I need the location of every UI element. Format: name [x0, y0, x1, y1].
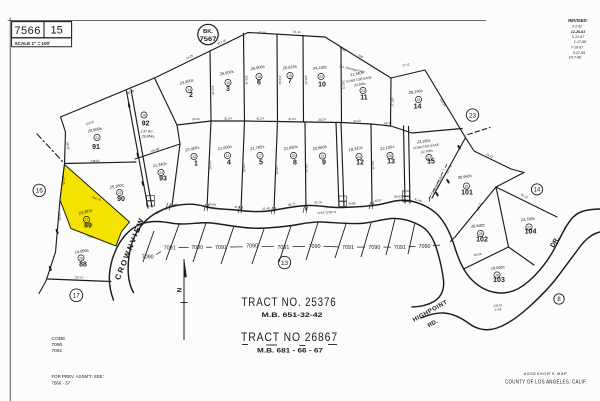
svg-text:25,180±: 25,180± [108, 182, 125, 190]
svg-text:44.85: 44.85 [348, 201, 356, 205]
svg-text:305.16: 305.16 [244, 75, 248, 85]
svg-text:40.68: 40.68 [208, 202, 216, 207]
svg-text:92: 92 [142, 121, 150, 128]
svg-text:26,600±: 26,600± [218, 68, 235, 76]
svg-text:16: 16 [36, 188, 44, 195]
svg-text:7091: 7091 [342, 245, 354, 251]
svg-text:1.37 AC.: 1.37 AC. [140, 130, 154, 134]
svg-text:2: 2 [189, 92, 193, 99]
svg-text:7567: 7567 [200, 36, 217, 43]
svg-text:7091: 7091 [52, 348, 63, 354]
svg-text:27: 27 [85, 218, 89, 222]
svg-text:175.00: 175.00 [275, 165, 280, 175]
svg-text:312.38: 312.38 [211, 85, 215, 95]
svg-text:101: 101 [461, 190, 473, 197]
svg-text:SCALE 1" = 100′: SCALE 1" = 100′ [15, 41, 51, 46]
svg-text:41.24: 41.24 [288, 117, 296, 121]
svg-text:162.25: 162.25 [371, 160, 375, 170]
svg-text:23: 23 [159, 171, 163, 175]
svg-text:7-10-67: 7-10-67 [571, 46, 584, 50]
svg-text:24: 24 [417, 98, 421, 102]
svg-text:170.01: 170.01 [242, 163, 247, 173]
svg-text:1-17-68: 1-17-68 [574, 40, 586, 44]
svg-text:89: 89 [84, 223, 92, 230]
svg-text:28,190±: 28,190± [407, 88, 424, 95]
svg-text:103: 103 [493, 277, 505, 284]
svg-text:22: 22 [319, 75, 323, 79]
svg-text:18,310±: 18,310± [348, 145, 364, 153]
svg-text:BK.: BK. [203, 29, 213, 35]
svg-text:142.50: 142.50 [85, 120, 95, 127]
svg-text:41.49: 41.49 [262, 206, 270, 210]
svg-text:RD.: RD. [427, 319, 439, 329]
svg-text:310.02: 310.02 [278, 75, 282, 85]
svg-text:13: 13 [192, 155, 196, 159]
svg-text:7090: 7090 [52, 342, 63, 348]
svg-text:M.B. 681 - 66 - 67: M.B. 681 - 66 - 67 [257, 348, 324, 355]
svg-text:28: 28 [79, 257, 83, 261]
svg-text:102: 102 [476, 237, 488, 244]
svg-text:14: 14 [414, 104, 422, 111]
svg-text:26: 26 [465, 185, 469, 189]
svg-text:20: 20 [292, 154, 296, 158]
svg-text:17: 17 [73, 293, 81, 300]
svg-text:30,940±: 30,940± [470, 222, 486, 229]
svg-text:20,860±: 20,860± [311, 144, 328, 152]
svg-text:225.71: 225.71 [476, 201, 483, 211]
svg-text:153.96: 153.96 [439, 98, 447, 108]
svg-text:11: 11 [360, 95, 368, 102]
svg-text:26,900±: 26,900± [249, 64, 266, 72]
svg-text:30.24: 30.24 [318, 117, 326, 121]
svg-text:22,700±: 22,700± [420, 149, 434, 155]
svg-text:18: 18 [257, 75, 261, 79]
svg-text:7090: 7090 [246, 244, 258, 250]
svg-text:7091: 7091 [394, 245, 406, 251]
svg-text:51.16: 51.16 [293, 30, 301, 34]
svg-text:137.67: 137.67 [74, 275, 84, 279]
svg-text:14,890±: 14,890± [74, 247, 90, 254]
svg-text:30,960±: 30,960± [457, 173, 473, 180]
svg-text:79.89: 79.89 [338, 45, 347, 52]
svg-text:24: 24 [357, 155, 361, 159]
svg-text:93: 93 [159, 176, 167, 183]
svg-text:10: 10 [318, 82, 326, 89]
svg-text:41.24: 41.24 [256, 116, 264, 120]
svg-text:10-7-68: 10-7-68 [569, 56, 581, 60]
svg-text:HIGHPOINT: HIGHPOINT [412, 299, 449, 324]
svg-text:N: N [177, 287, 184, 292]
svg-text:9: 9 [322, 160, 326, 167]
svg-text:40.57: 40.57 [374, 198, 382, 203]
svg-text:12-26-61: 12-26-61 [571, 30, 585, 34]
svg-text:296.53: 296.53 [304, 75, 308, 85]
svg-text:4: 4 [227, 160, 231, 167]
svg-text:7090: 7090 [368, 245, 380, 251]
svg-text:21,340±: 21,340± [151, 161, 168, 169]
svg-text:7566: 7566 [14, 25, 40, 37]
svg-text:3-12-67: 3-12-67 [572, 35, 585, 39]
svg-text:158: 158 [357, 53, 364, 59]
svg-text:3-1-62: 3-1-62 [572, 25, 582, 29]
svg-text:21,785±: 21,785± [249, 144, 266, 152]
svg-text:TRACT NO. 25376: TRACT NO. 25376 [242, 297, 337, 309]
svg-text:91: 91 [92, 144, 100, 151]
svg-text:TRACT NO 26867: TRACT NO 26867 [241, 332, 338, 344]
svg-text:20,900±: 20,900± [86, 125, 103, 133]
svg-text:41.37: 41.37 [234, 205, 242, 210]
svg-text:183.62: 183.62 [304, 163, 308, 173]
svg-text:98.16: 98.16 [65, 142, 71, 150]
svg-text:88: 88 [79, 262, 87, 269]
svg-text:91.300: 91.300 [168, 202, 178, 208]
svg-text:22,100±: 22,100± [379, 144, 396, 152]
svg-text:90: 90 [117, 196, 125, 203]
svg-text:16: 16 [142, 114, 146, 118]
svg-text:12: 12 [356, 160, 364, 167]
svg-text:ASSESSOR’S MAP: ASSESSOR’S MAP [524, 371, 568, 376]
svg-text:5-27-69: 5-27-69 [573, 51, 585, 55]
svg-text:7090: 7090 [419, 244, 431, 250]
svg-text:CODE: CODE [52, 336, 66, 342]
svg-text:21: 21 [321, 155, 325, 159]
svg-text:21,000±: 21,000± [216, 144, 233, 152]
svg-text:N 84°13′35″ E: N 84°13′35″ E [318, 210, 337, 215]
svg-text:23: 23 [469, 112, 477, 119]
svg-text:25: 25 [388, 154, 392, 158]
svg-text:7091: 7091 [215, 245, 227, 251]
svg-text:Drainage Esmt: Drainage Esmt [431, 175, 444, 194]
svg-text:73.84: 73.84 [86, 234, 94, 239]
svg-text:21,830±: 21,830± [282, 144, 299, 152]
svg-text:E: E [564, 226, 566, 230]
svg-text:12: 12 [226, 154, 230, 158]
svg-text:29,864±: 29,864± [141, 135, 155, 139]
svg-text:7566 - 37: 7566 - 37 [52, 381, 71, 386]
svg-text:23,900±: 23,900± [178, 77, 195, 86]
svg-text:56.79: 56.79 [314, 200, 322, 205]
svg-text:86.71: 86.71 [288, 202, 296, 207]
svg-text:FOR PREV. ASSM’T. SEE:: FOR PREV. ASSM’T. SEE: [52, 374, 104, 379]
svg-text:17: 17 [258, 154, 262, 158]
svg-text:REVISED:: REVISED: [568, 18, 588, 23]
svg-text:31.24: 31.24 [224, 116, 232, 120]
svg-text:22,400±: 22,400± [184, 144, 201, 152]
svg-text:13: 13 [281, 260, 289, 267]
svg-text:1: 1 [194, 161, 198, 168]
svg-text:8: 8 [293, 160, 297, 167]
svg-text:7: 7 [288, 78, 292, 85]
svg-text:60.96: 60.96 [474, 252, 482, 257]
svg-text:21: 21 [95, 136, 99, 140]
svg-text:26,610±: 26,610± [281, 63, 298, 70]
svg-text:3: 3 [226, 86, 230, 93]
svg-text:163.62: 163.62 [208, 160, 213, 170]
svg-text:15: 15 [226, 81, 230, 85]
svg-text:19,600±: 19,600± [490, 264, 506, 271]
svg-text:22: 22 [118, 191, 122, 195]
svg-text:30.24: 30.24 [192, 117, 200, 122]
svg-text:23: 23 [361, 89, 365, 93]
svg-text:M.B. 651-32-42: M.B. 651-32-42 [262, 312, 324, 319]
svg-text:24,240±: 24,240± [311, 64, 328, 71]
svg-text:2+38: 2+38 [494, 307, 501, 311]
svg-text:25: 25 [479, 232, 483, 236]
svg-text:148.02: 148.02 [90, 159, 100, 163]
svg-text:104: 104 [525, 229, 537, 236]
svg-text:15: 15 [427, 159, 435, 166]
svg-text:81.32: 81.32 [520, 193, 529, 200]
svg-text:40.43: 40.43 [353, 119, 361, 123]
svg-text:77.12: 77.12 [402, 62, 410, 68]
svg-text:COUNTY OF LOS ANGELES, CALIF.: COUNTY OF LOS ANGELES, CALIF. [505, 380, 587, 386]
svg-text:8: 8 [557, 297, 561, 303]
svg-text:6: 6 [257, 80, 261, 87]
svg-text:24,780±: 24,780± [519, 216, 536, 223]
svg-text:407.17: 407.17 [390, 97, 394, 107]
svg-text:5: 5 [259, 160, 263, 167]
svg-text:89.63: 89.63 [394, 194, 402, 199]
svg-text:42.29: 42.29 [258, 30, 266, 34]
svg-text:293.71: 293.71 [341, 80, 345, 90]
svg-text:20,300±: 20,300± [352, 81, 366, 87]
svg-text:15: 15 [50, 25, 62, 37]
svg-text:14: 14 [534, 188, 541, 194]
svg-text:13: 13 [387, 159, 395, 166]
